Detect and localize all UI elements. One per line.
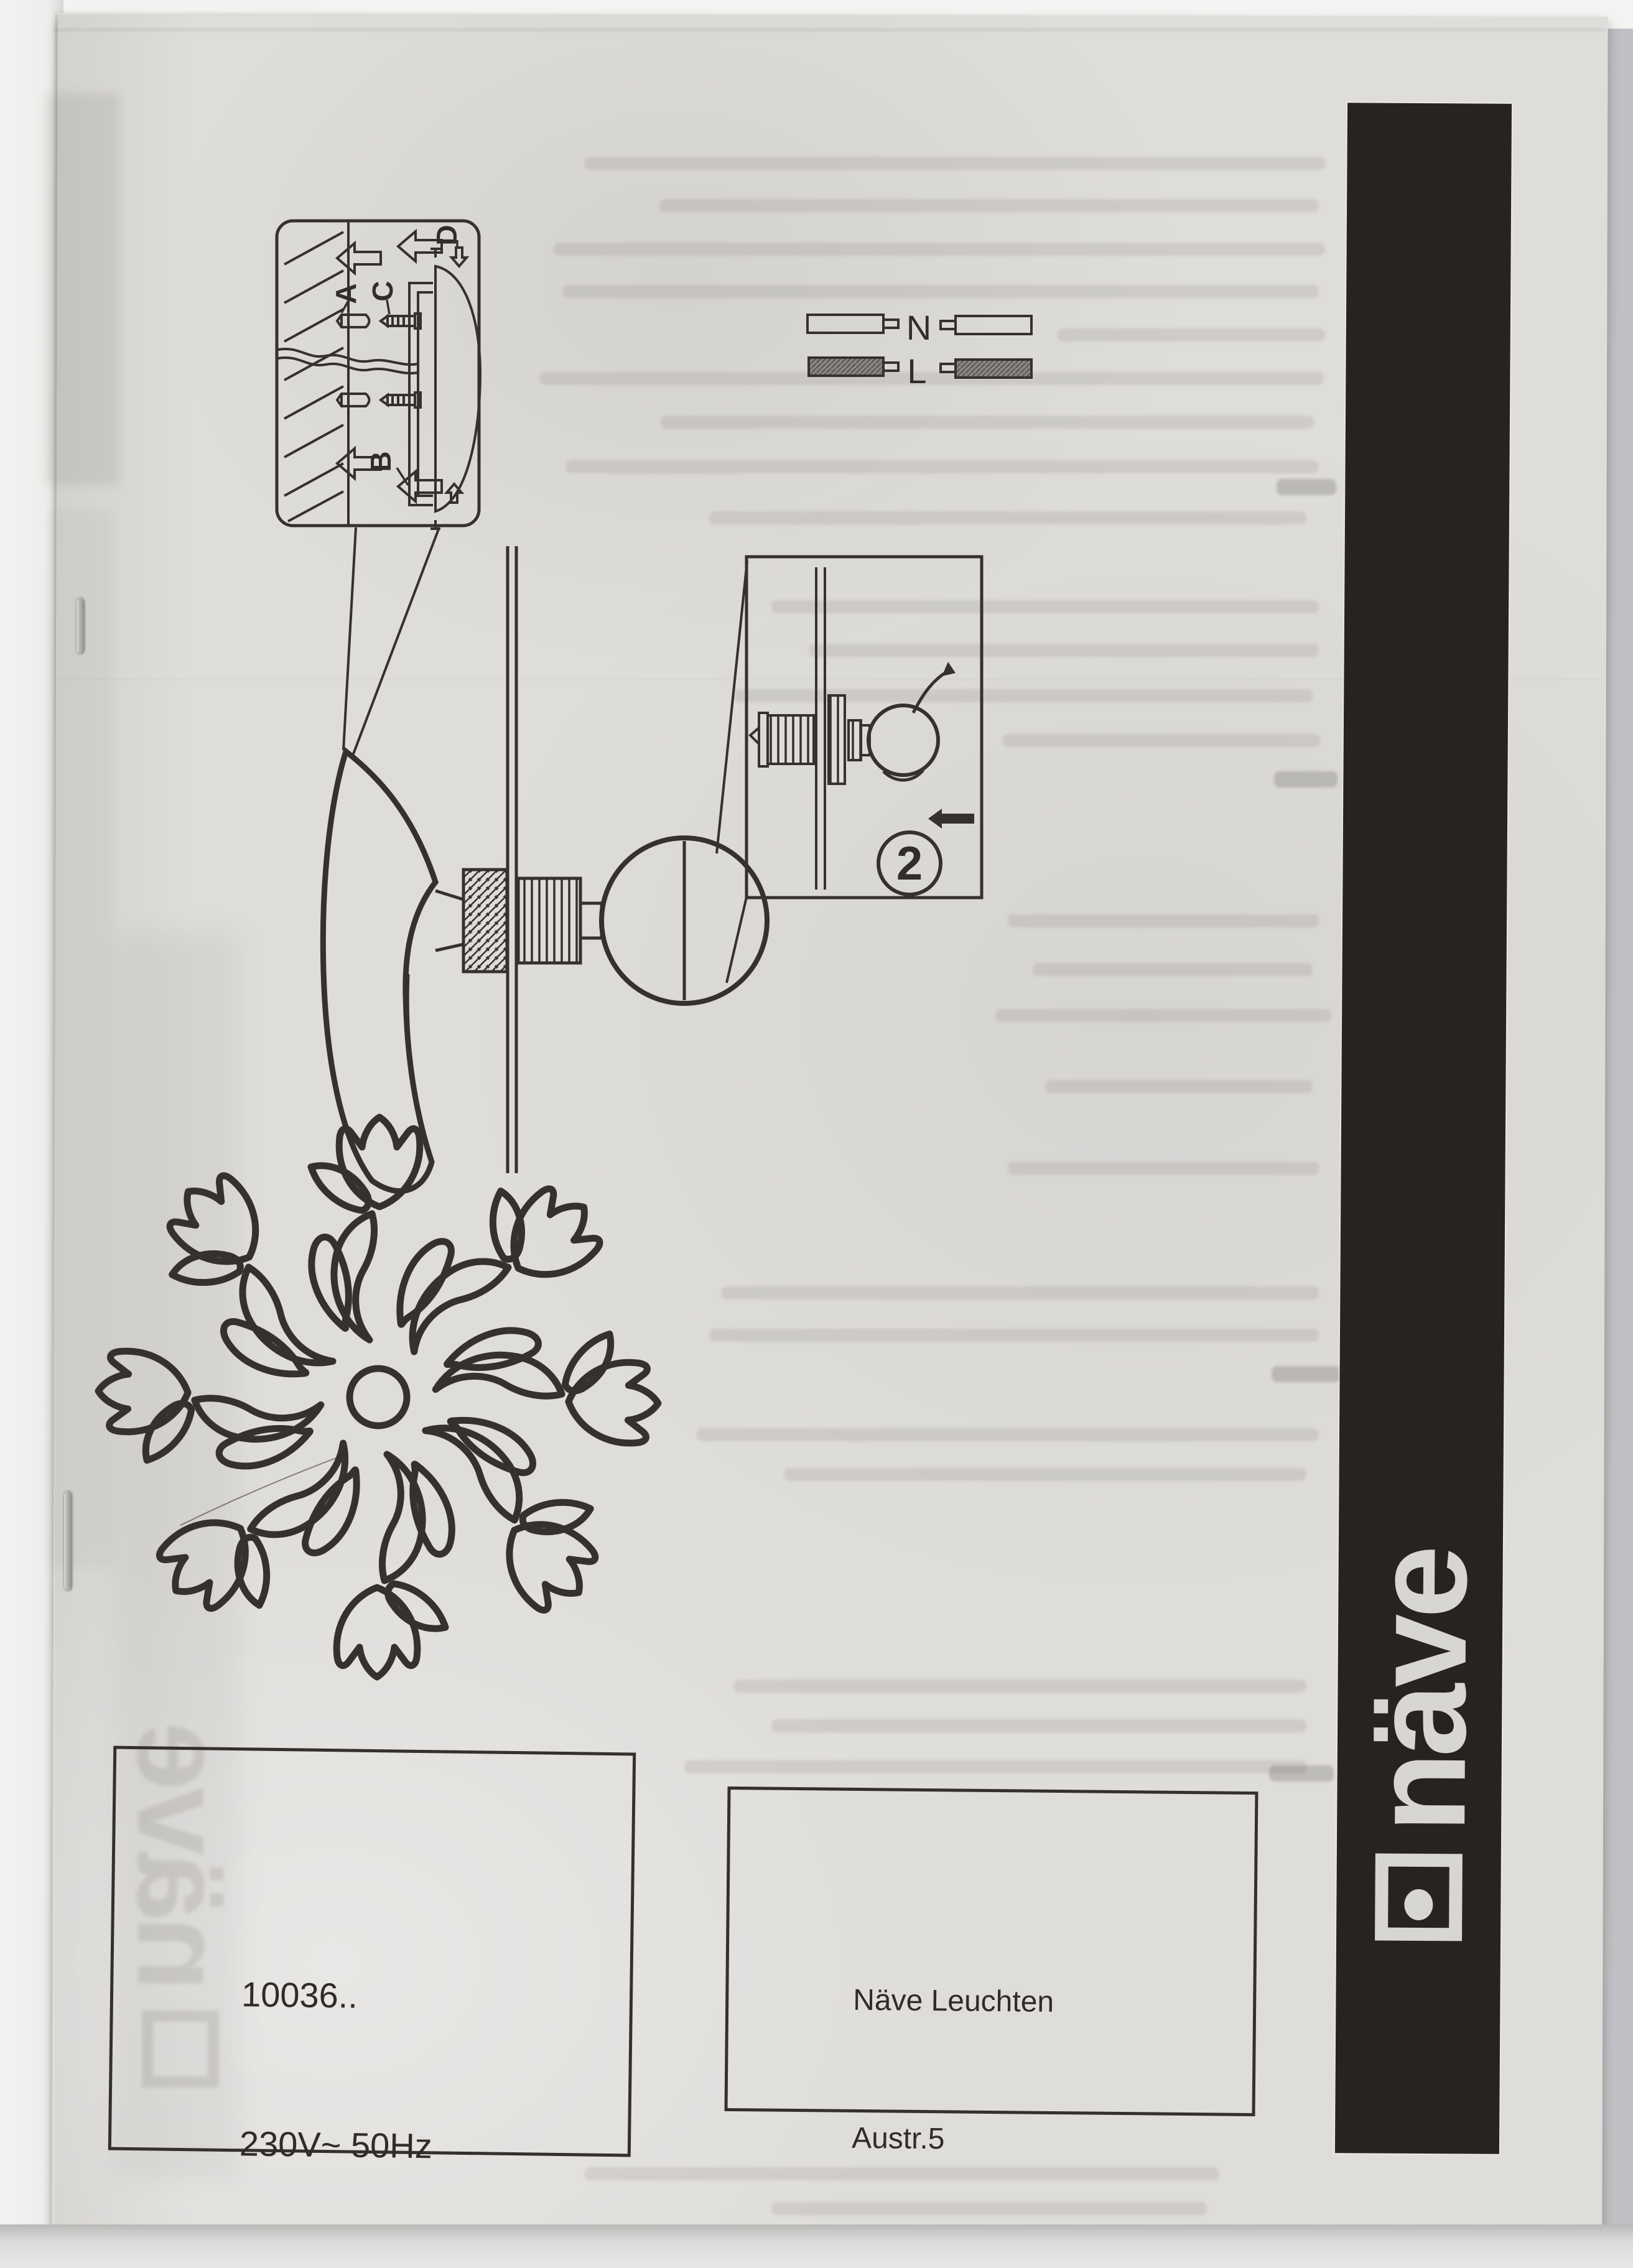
article-number: 10036..	[241, 1969, 470, 2022]
label-neutral: N	[906, 308, 931, 347]
label-d: D	[430, 225, 463, 245]
nave-logo-dot-icon	[1404, 1889, 1433, 1920]
nave-logo-square-icon	[1375, 1854, 1463, 1941]
nave-logo-word: näve	[1369, 1549, 1471, 1833]
push-arrow-icon	[928, 809, 974, 829]
company-name: Näve Leuchten	[853, 1978, 1154, 2027]
staple	[64, 1492, 72, 1590]
wiring-diagram: N L	[807, 308, 1031, 391]
address-box: Näve Leuchten Austr.5 D-74670 Forchtenbe…	[725, 1787, 1258, 2116]
label-live: L	[907, 351, 926, 391]
label-c: C	[366, 281, 399, 301]
address-spacer	[850, 2254, 1151, 2268]
street-address: Austr.5	[852, 2116, 1153, 2165]
nave-logo: näve	[1369, 1391, 1471, 1941]
ornament-drawing	[97, 1117, 659, 1677]
step-number: 2	[896, 837, 923, 890]
photographed-leaflet: näve	[0, 0, 1633, 2268]
staple	[77, 598, 85, 653]
voltage-spec: 230V~ 50Hz	[239, 2119, 468, 2172]
spec-box: 10036.. 230V~ 50Hz 40 W E27 max. 40W	[108, 1746, 636, 2157]
label-b: B	[365, 451, 397, 472]
assembly-diagram	[323, 527, 767, 1191]
label-a: A	[330, 283, 362, 304]
assembly-detail-inset: 2	[747, 557, 982, 898]
brand-banner: näve	[1335, 103, 1512, 2154]
mounting-diagram: A C B D	[277, 221, 480, 529]
